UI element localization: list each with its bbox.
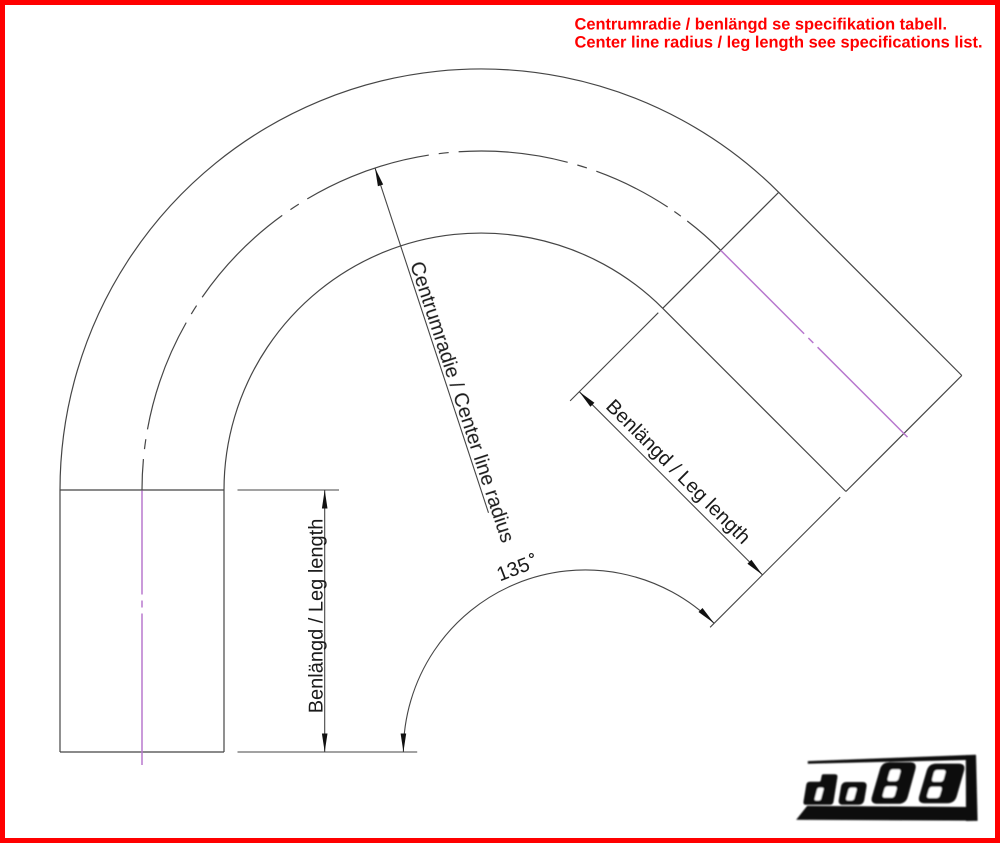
svg-text:Centrumradie / benlängd se spe: Centrumradie / benlängd se specifikation… xyxy=(575,16,948,34)
svg-text:Benlängd / Leg length: Benlängd / Leg length xyxy=(306,519,328,714)
svg-text:Center line radius / leg lengt: Center line radius / leg length see spec… xyxy=(575,34,983,52)
